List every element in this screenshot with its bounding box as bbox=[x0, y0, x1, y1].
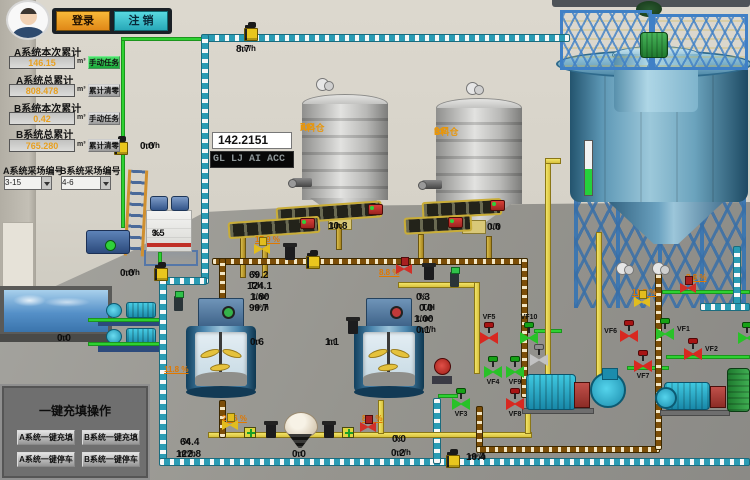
meter-icon[interactable] bbox=[266, 424, 276, 438]
motor-icon[interactable] bbox=[300, 218, 315, 229]
valve-unlabeled-icon[interactable] bbox=[738, 322, 750, 344]
logout-button[interactable]: 注 销 bbox=[114, 11, 168, 31]
green-icon[interactable] bbox=[174, 296, 183, 311]
meter-icon[interactable] bbox=[285, 246, 295, 260]
yvalve-icon[interactable] bbox=[634, 297, 650, 307]
nozzle-icon[interactable] bbox=[292, 178, 312, 187]
blower-icon[interactable] bbox=[652, 262, 670, 274]
gplus-icon[interactable] bbox=[244, 427, 256, 438]
manual-task-b-button[interactable]: 手动任务 bbox=[88, 112, 120, 125]
sampling-a-select[interactable]: 3-15 bbox=[4, 176, 52, 190]
valve-VF10-icon[interactable]: VF10 bbox=[520, 322, 538, 344]
green-icon[interactable] bbox=[450, 272, 459, 287]
valve-VF8-icon[interactable]: VF8 bbox=[506, 388, 524, 410]
unit-label: m³ bbox=[77, 141, 86, 148]
nozzle-icon[interactable] bbox=[422, 180, 442, 189]
a-one-key-stop-button[interactable]: A系统一键停车 bbox=[17, 452, 75, 467]
flow-icon[interactable] bbox=[244, 22, 257, 41]
user-avatar-icon bbox=[6, 0, 50, 40]
numeric-display: 142.2151 bbox=[212, 132, 292, 149]
valve-VF2-icon[interactable]: VF2 bbox=[684, 338, 702, 360]
marquee-display: GL LJ AI ACC bbox=[210, 151, 294, 168]
total-a-current-input[interactable] bbox=[9, 56, 75, 69]
login-button[interactable]: 登录 bbox=[56, 11, 110, 31]
valve-VF7-icon[interactable]: VF7 bbox=[634, 350, 652, 372]
motor-icon[interactable] bbox=[368, 204, 383, 215]
meter-icon[interactable] bbox=[348, 320, 358, 334]
valve-VF3-icon[interactable]: VF3 bbox=[452, 388, 470, 410]
reset-total-b-button[interactable]: 累计清零 bbox=[88, 139, 120, 152]
b-one-key-stop-button[interactable]: B系统一键停车 bbox=[82, 452, 140, 467]
flow-icon[interactable] bbox=[306, 250, 319, 269]
valve-unlabeled-icon[interactable] bbox=[530, 344, 548, 366]
sampling-b-select[interactable]: 4-6 bbox=[61, 176, 111, 190]
motor-icon[interactable] bbox=[448, 217, 463, 228]
unit-label: m³ bbox=[77, 86, 86, 93]
gplus-icon[interactable] bbox=[342, 427, 354, 438]
a-one-key-fill-button[interactable]: A系统一键充填 bbox=[17, 430, 75, 445]
total-b-current-input[interactable] bbox=[9, 112, 75, 125]
flow-icon[interactable] bbox=[446, 449, 459, 468]
blower-icon[interactable] bbox=[616, 262, 634, 274]
chevron-down-icon[interactable] bbox=[100, 177, 110, 189]
unit-label: m³ bbox=[77, 114, 86, 121]
rvalve-icon[interactable] bbox=[680, 283, 696, 293]
meter-icon[interactable] bbox=[424, 266, 434, 280]
rpump-icon[interactable] bbox=[432, 356, 452, 384]
manual-task-a-button[interactable]: 手动任务 bbox=[88, 56, 120, 69]
valve-VF1-icon[interactable]: VF1 bbox=[656, 318, 674, 340]
rvalve-icon[interactable] bbox=[360, 422, 376, 432]
blower-icon[interactable] bbox=[466, 82, 484, 94]
quick-ops-panel: 一键充填操作 A系统一键充填 B系统一键充填 A系统一键停车 B系统一键停车 bbox=[0, 384, 150, 480]
quick-ops-title: 一键充填操作 bbox=[2, 402, 148, 419]
yvalve-icon[interactable] bbox=[222, 420, 238, 430]
chevron-down-icon[interactable] bbox=[41, 177, 51, 189]
valve-VF9-icon[interactable]: VF9 bbox=[506, 356, 524, 378]
scada-screen: A料仓 7.2 m B料仓 9.7 m 3.5 % bbox=[0, 0, 750, 480]
total-b-sum-input[interactable] bbox=[9, 139, 75, 152]
yvalve-icon[interactable] bbox=[254, 244, 270, 254]
valve-VF4-icon[interactable]: VF4 bbox=[484, 356, 502, 378]
meter-icon[interactable] bbox=[324, 424, 334, 438]
rvalve-icon[interactable] bbox=[396, 264, 412, 274]
unit-label: m³ bbox=[77, 58, 86, 65]
flow-icon[interactable] bbox=[154, 262, 167, 281]
percent-label: 11.8 % bbox=[164, 365, 188, 374]
motor-icon[interactable] bbox=[490, 200, 505, 211]
b-one-key-fill-button[interactable]: B系统一键充填 bbox=[82, 430, 140, 445]
reset-total-a-button[interactable]: 累计清零 bbox=[88, 84, 120, 97]
valve-VF6-icon[interactable]: VF6 bbox=[620, 320, 638, 342]
total-a-sum-input[interactable] bbox=[9, 84, 75, 97]
valve-VF5-icon[interactable]: VF5 bbox=[480, 322, 498, 344]
blower-icon[interactable] bbox=[316, 78, 334, 90]
